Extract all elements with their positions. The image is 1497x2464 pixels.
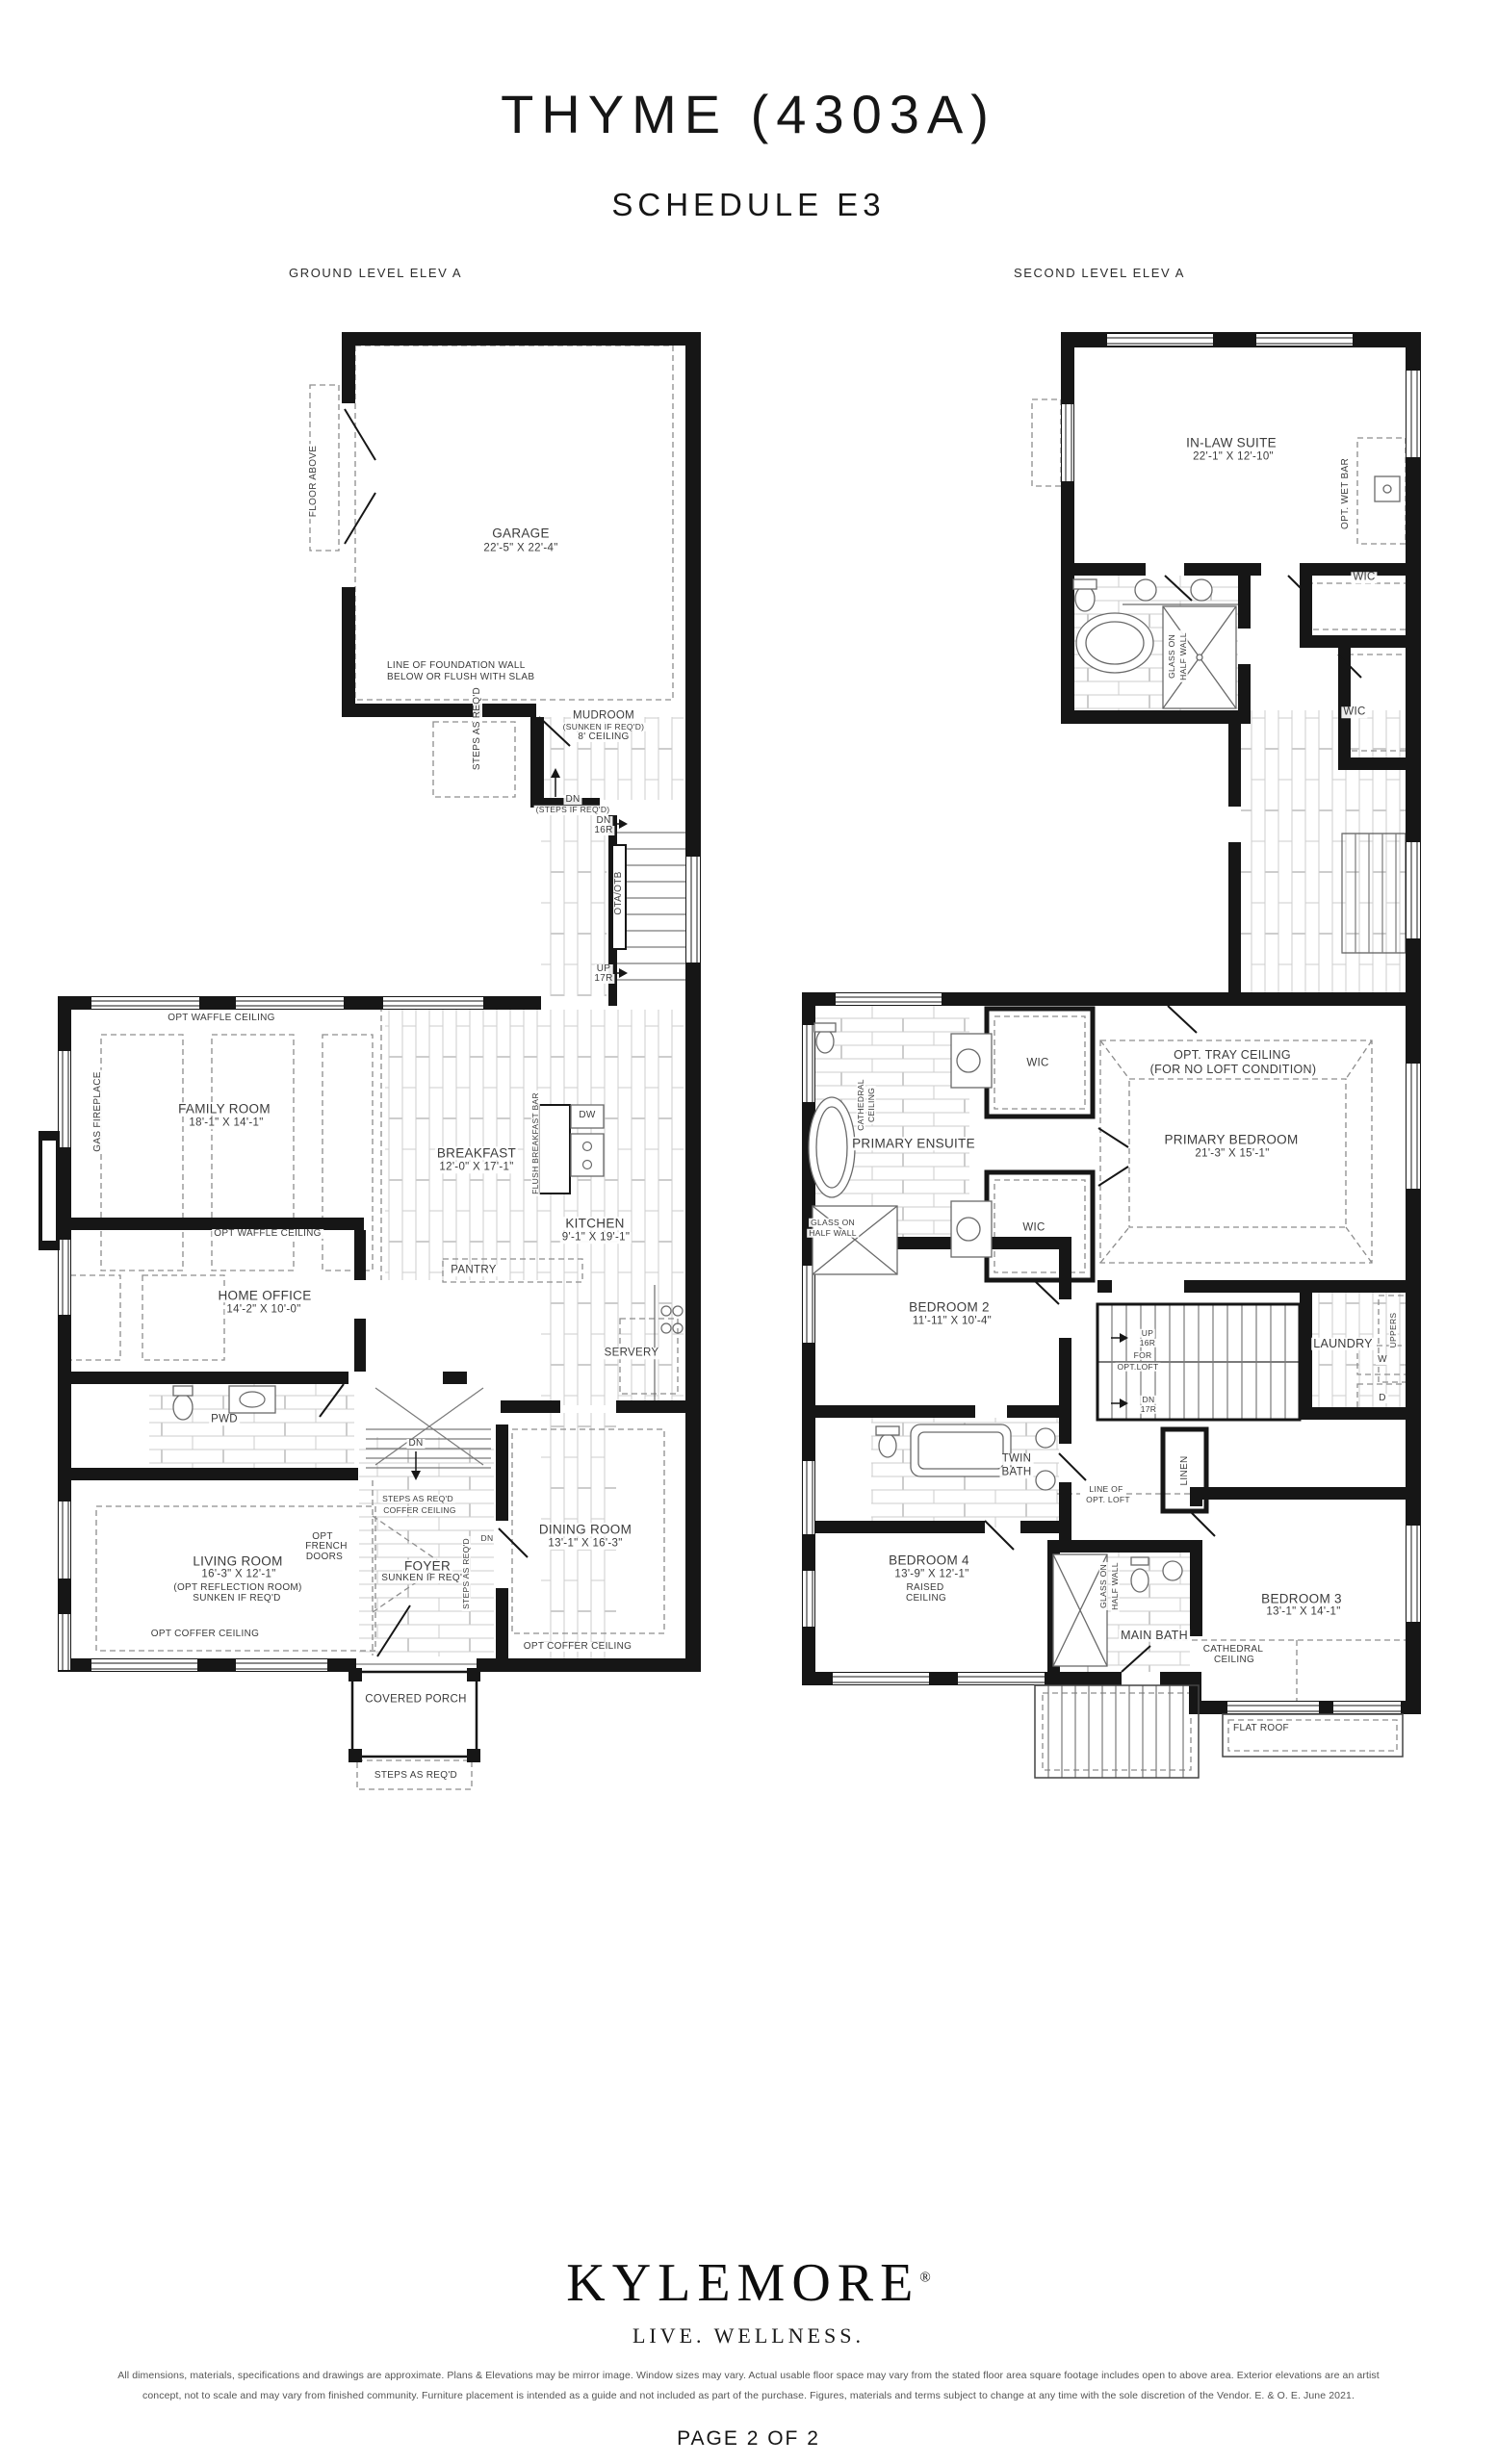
living-room-note-2: SUNKEN IF REQ'D bbox=[191, 1594, 282, 1604]
garage-label: GARAGE bbox=[490, 526, 552, 540]
dining-room-label: DINING ROOM bbox=[537, 1523, 633, 1536]
stair-dn-label-2: DN bbox=[1141, 1396, 1157, 1404]
wic-label-2: WIC bbox=[1341, 706, 1367, 718]
inlaw-glass-note-2: HALF WALL bbox=[1179, 630, 1188, 682]
inlaw-suite-dims: 22'-1" X 12'-10" bbox=[1191, 451, 1276, 463]
bedroom4-note-2: CEILING bbox=[904, 1594, 948, 1604]
bedroom2-dims: 11'-11" X 10'-4" bbox=[911, 1316, 994, 1327]
primary-bedroom-label: PRIMARY BEDROOM bbox=[1162, 1133, 1300, 1146]
uppers-note: UPPERS bbox=[1389, 1311, 1398, 1350]
family-room-label: FAMILY ROOM bbox=[176, 1102, 272, 1116]
breakfast-label: BREAKFAST bbox=[435, 1146, 518, 1160]
bedroom3-label: BEDROOM 3 bbox=[1259, 1592, 1344, 1605]
foyer-steps-note-1: STEPS AS REQ'D bbox=[380, 1495, 455, 1503]
dishwasher-label: DW bbox=[577, 1111, 597, 1120]
porch-steps-note: STEPS AS REQ'D bbox=[373, 1771, 459, 1781]
primary-ensuite-label: PRIMARY ENSUITE bbox=[850, 1137, 977, 1150]
stair-dn-risers-2: 17R bbox=[1139, 1405, 1159, 1414]
mudroom-dn-label: DN bbox=[563, 795, 581, 805]
bedroom3-dims: 13'-1" X 14'-1" bbox=[1264, 1606, 1342, 1618]
foyer-dn-label: DN bbox=[406, 1439, 425, 1449]
floor-above-note: FLOOR ABOVE bbox=[309, 444, 319, 519]
laundry-label: LAUNDRY bbox=[1311, 1338, 1375, 1350]
bedroom4-label: BEDROOM 4 bbox=[887, 1553, 971, 1567]
loft-stair-up-1: UP bbox=[1140, 1329, 1155, 1338]
brand-tagline: LIVE. WELLNESS. bbox=[0, 2323, 1497, 2348]
page-number: PAGE 2 OF 2 bbox=[0, 2427, 1497, 2451]
foyer-note: SUNKEN IF REQ'D bbox=[379, 1574, 471, 1583]
home-office-dims: 14'-2" X 10'-0" bbox=[224, 1304, 302, 1316]
foundation-note-2: BELOW OR FLUSH WITH SLAB bbox=[385, 673, 536, 682]
primary-bedroom-dims: 21'-3" X 15'-1" bbox=[1193, 1148, 1271, 1160]
family-room-dims: 18'-1" X 14'-1" bbox=[187, 1117, 265, 1129]
registered-mark: ® bbox=[919, 2270, 930, 2285]
dining-ceiling-note: OPT COFFER CEILING bbox=[522, 1642, 633, 1652]
page-subtitle: SCHEDULE E3 bbox=[0, 187, 1497, 223]
living-room-note-1: (OPT REFLECTION ROOM) bbox=[171, 1583, 303, 1593]
garage-steps-note: STEPS AS REQ'D bbox=[473, 685, 482, 772]
family-ceiling-note: OPT WAFFLE CEILING bbox=[166, 1014, 277, 1023]
office-ceiling-note: OPT WAFFLE CEILING bbox=[212, 1229, 323, 1239]
garage-dims: 22'-5" X 22'-4" bbox=[481, 543, 559, 554]
twin-bath-label-1: TWIN bbox=[1000, 1453, 1034, 1465]
ground-plan-drawing bbox=[39, 318, 717, 1819]
stair-dn-risers: 16R bbox=[592, 826, 614, 835]
gas-fireplace-label: GAS FIREPLACE bbox=[93, 1069, 103, 1153]
bed3-cathedral-note-2: CEILING bbox=[1212, 1655, 1256, 1665]
ensuite-cathedral-note-1: CATHEDRAL bbox=[857, 1077, 865, 1133]
flat-roof-label: FLAT ROOF bbox=[1231, 1724, 1291, 1733]
disclaimer-line-1: All dimensions, materials, specification… bbox=[0, 2370, 1497, 2381]
bed3-cathedral-note-1: CATHEDRAL bbox=[1201, 1645, 1266, 1655]
pwd-label: PWD bbox=[209, 1414, 240, 1425]
ground-level-plan: FLOOR ABOVE GARAGE 22'-5" X 22'-4" LINE … bbox=[39, 318, 717, 1819]
foyer-steps-note-2: COFFER CEILING bbox=[381, 1506, 458, 1515]
dryer-label: D bbox=[1377, 1394, 1388, 1403]
mudroom-label: MUDROOM bbox=[571, 710, 636, 722]
wic-label-1: WIC bbox=[1351, 572, 1377, 583]
hall-dn-label: DN bbox=[479, 1534, 496, 1543]
loft-stair-up-4: OPT.LOFT bbox=[1115, 1363, 1160, 1372]
inlaw-glass-note-1: GLASS ON bbox=[1168, 632, 1176, 680]
kitchen-dims: 9'-1" X 19'-1" bbox=[560, 1232, 632, 1244]
mudroom-dn-note: (STEPS IF REQ'D) bbox=[534, 806, 612, 814]
foundation-note-1: LINE OF FOUNDATION WALL bbox=[385, 661, 528, 671]
pantry-label: PANTRY bbox=[449, 1265, 498, 1276]
brand-logo: KYLEMORE® bbox=[0, 2252, 1497, 2314]
foyer-steps-side-note: STEPS AS REQ'D bbox=[462, 1536, 471, 1611]
living-ceiling-note: OPT COFFER CEILING bbox=[149, 1630, 261, 1639]
floorplan-page: THYME (4303A) SCHEDULE E3 GROUND LEVEL E… bbox=[0, 0, 1497, 2464]
bedroom2-label: BEDROOM 2 bbox=[907, 1300, 992, 1314]
inlaw-suite-label: IN-LAW SUITE bbox=[1184, 436, 1278, 449]
kitchen-label: KITCHEN bbox=[563, 1217, 626, 1230]
disclaimer-line-2: concept, not to scale and may vary from … bbox=[0, 2390, 1497, 2401]
second-plan-title: SECOND LEVEL ELEV A bbox=[1014, 266, 1185, 280]
opt-loft-line-note-1: LINE OF bbox=[1087, 1485, 1124, 1494]
covered-porch-label: COVERED PORCH bbox=[363, 1694, 469, 1706]
bedroom4-note-1: RAISED bbox=[904, 1583, 945, 1593]
mainbath-glass-note-2: HALF WALL bbox=[1111, 1560, 1120, 1612]
living-room-label: LIVING ROOM bbox=[191, 1554, 284, 1568]
tray-ceiling-note-2: (FOR NO LOFT CONDITION) bbox=[1149, 1064, 1319, 1076]
main-bath-label: MAIN BATH bbox=[1119, 1630, 1190, 1642]
home-office-label: HOME OFFICE bbox=[216, 1289, 313, 1302]
second-tile-floors bbox=[815, 576, 1408, 1672]
wet-bar-note: OPT. WET BAR bbox=[1341, 456, 1351, 531]
page-title: THYME (4303A) bbox=[0, 83, 1497, 145]
french-doors-note-3: DOORS bbox=[304, 1553, 345, 1562]
foyer-label: FOYER bbox=[402, 1559, 452, 1573]
washer-label: W bbox=[1376, 1355, 1389, 1365]
mudroom-note-1: (SUNKEN IF REQ'D) bbox=[561, 723, 647, 731]
french-doors-note-2: FRENCH bbox=[303, 1542, 348, 1552]
breakfast-bar-label: FLUSH BREAKFAST BAR bbox=[531, 1091, 540, 1196]
stair-up-risers: 17R bbox=[592, 974, 614, 984]
ground-plan-title: GROUND LEVEL ELEV A bbox=[289, 266, 462, 280]
linen-label: LINEN bbox=[1180, 1454, 1190, 1488]
bedroom4-dims: 13'-9" X 12'-1" bbox=[892, 1569, 970, 1580]
second-level-plan: IN-LAW SUITE 22'-1" X 12'-10" OPT. WET B… bbox=[780, 318, 1454, 1800]
ensuite-cathedral-note-2: CEILING bbox=[867, 1086, 876, 1124]
tray-ceiling-note-1: OPT. TRAY CEILING bbox=[1172, 1049, 1293, 1062]
breakfast-dims: 12'-0" X 17'-1" bbox=[437, 1162, 515, 1173]
dining-room-dims: 13'-1" X 16'-3" bbox=[546, 1538, 624, 1550]
wic-label-3: WIC bbox=[1024, 1058, 1050, 1069]
ensuite-glass-note-1: GLASS ON bbox=[809, 1219, 857, 1227]
living-room-dims: 16'-3" X 12'-1" bbox=[199, 1569, 277, 1580]
ground-tile-floors bbox=[149, 717, 684, 1658]
loft-stair-up-2: 16R bbox=[1138, 1339, 1158, 1347]
opt-loft-line-note-2: OPT. LOFT bbox=[1084, 1496, 1132, 1504]
twin-bath-label-2: BATH bbox=[999, 1467, 1033, 1478]
mudroom-note-2: 8' CEILING bbox=[576, 732, 631, 742]
mainbath-glass-note-1: GLASS ON bbox=[1099, 1562, 1108, 1610]
wic-label-4: WIC bbox=[1020, 1222, 1046, 1234]
stair-code: OTA/OTB bbox=[614, 869, 624, 916]
servery-label: SERVERY bbox=[603, 1347, 661, 1359]
loft-stair-up-3: FOR bbox=[1132, 1351, 1154, 1360]
ensuite-glass-note-2: HALF WALL bbox=[807, 1229, 859, 1238]
brand-name: KYLEMORE bbox=[566, 2253, 919, 2313]
